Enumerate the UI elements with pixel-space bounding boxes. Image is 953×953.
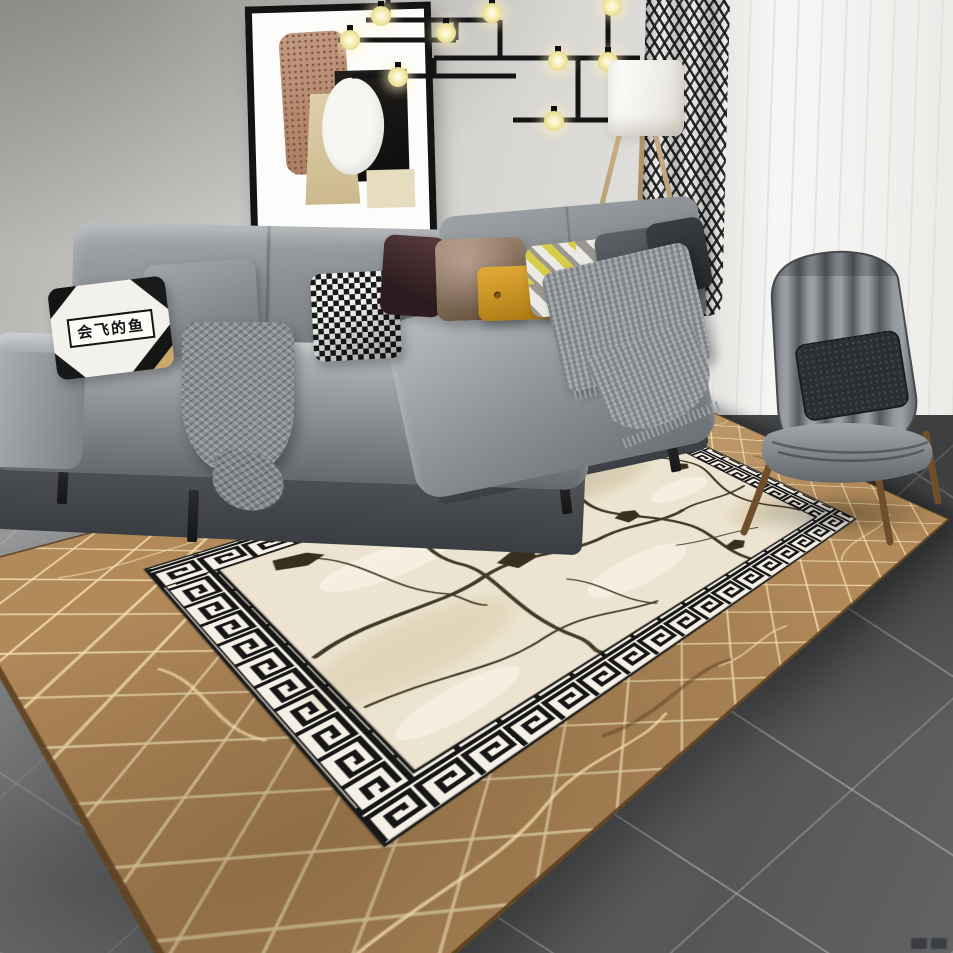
armchair-cushion [795, 330, 910, 421]
lamp-shade [608, 60, 684, 136]
sofa-leg [187, 490, 199, 542]
wingback-armchair [730, 246, 953, 551]
chandelier-bulbs [338, 0, 626, 136]
art-beige-rect [366, 169, 415, 208]
watermark [911, 938, 947, 949]
chandelier [338, 0, 650, 152]
pillow-text: 会飞的鱼 [67, 308, 156, 347]
living-room-photo: 会飞的鱼 [0, 0, 953, 953]
pillow-flying-fish: 会飞的鱼 [47, 275, 175, 381]
